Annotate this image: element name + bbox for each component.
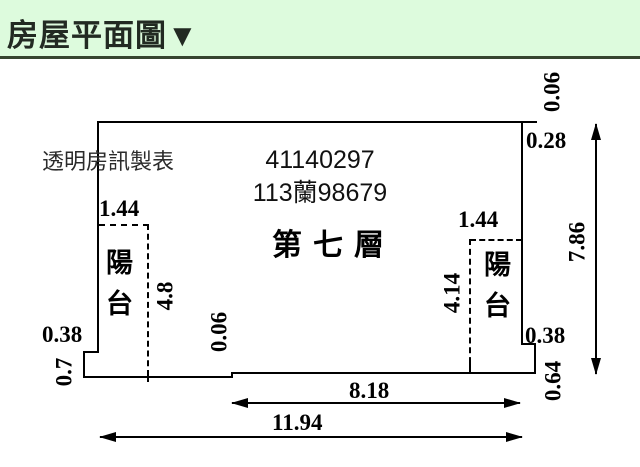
balcony-left-dashed-side (147, 224, 149, 376)
dim-balcony-right-depth: 4.14 (441, 273, 464, 313)
floor-label: 第七層 (272, 220, 395, 264)
dim-bottom-inner-width: 8.18 (349, 379, 389, 402)
arrow-up-icon (591, 123, 601, 140)
balcony-right-label: 陽台 (481, 250, 508, 332)
wall-bottom-right (231, 372, 536, 374)
dim-bottom-total-width: 11.94 (272, 411, 322, 434)
dim-balcony-right-width: 1.44 (458, 208, 498, 231)
wall-right (521, 121, 523, 345)
case-number: 41140297 (255, 146, 385, 175)
arrow-right-icon (504, 398, 521, 408)
dimension-arrow-width-11-94 (100, 436, 522, 438)
wall-left-step-horizontal (83, 351, 99, 353)
section-header: 房屋平面圖▼ (0, 0, 640, 59)
dim-right-top-inset: 0.28 (526, 129, 566, 152)
maker-label: 透明房訊製表 (42, 144, 174, 176)
dim-balcony-left-depth: 4.8 (154, 282, 177, 311)
wall-bottom-left (83, 376, 233, 378)
arrow-left-icon (99, 432, 116, 442)
dim-balcony-left-width: 1.44 (99, 197, 139, 220)
dim-top-right-offset: 0.06 (541, 72, 564, 112)
arrow-down-icon (591, 358, 601, 375)
dim-right-step-width: 0.38 (525, 324, 565, 347)
balcony-left-dashed-top (99, 224, 149, 226)
floor-plan: 透明房訊製表 41140297 113蘭98679 第七層 陽台 陽台 1.44… (0, 62, 640, 467)
dim-right-step-height: 0.64 (542, 361, 565, 401)
page-title: 房屋平面圖▼ (7, 10, 199, 55)
dim-right-total-height: 7.86 (566, 222, 589, 262)
permit-number: 113蘭98679 (245, 173, 395, 209)
dim-bottom-step-offset: 0.06 (208, 312, 231, 352)
dim-left-step-width: 0.38 (42, 323, 82, 346)
wall-left-step-vertical (83, 351, 85, 378)
balcony-right-dashed-side (469, 239, 471, 373)
balcony-left-label: 陽台 (103, 248, 130, 330)
arrow-right-icon (506, 432, 523, 442)
dim-left-step-height: 0.7 (53, 358, 76, 387)
balcony-right-dashed-top (470, 239, 522, 241)
wall-top (98, 121, 537, 123)
dimension-arrow-height-7-86 (595, 124, 597, 374)
arrow-left-icon (231, 398, 248, 408)
